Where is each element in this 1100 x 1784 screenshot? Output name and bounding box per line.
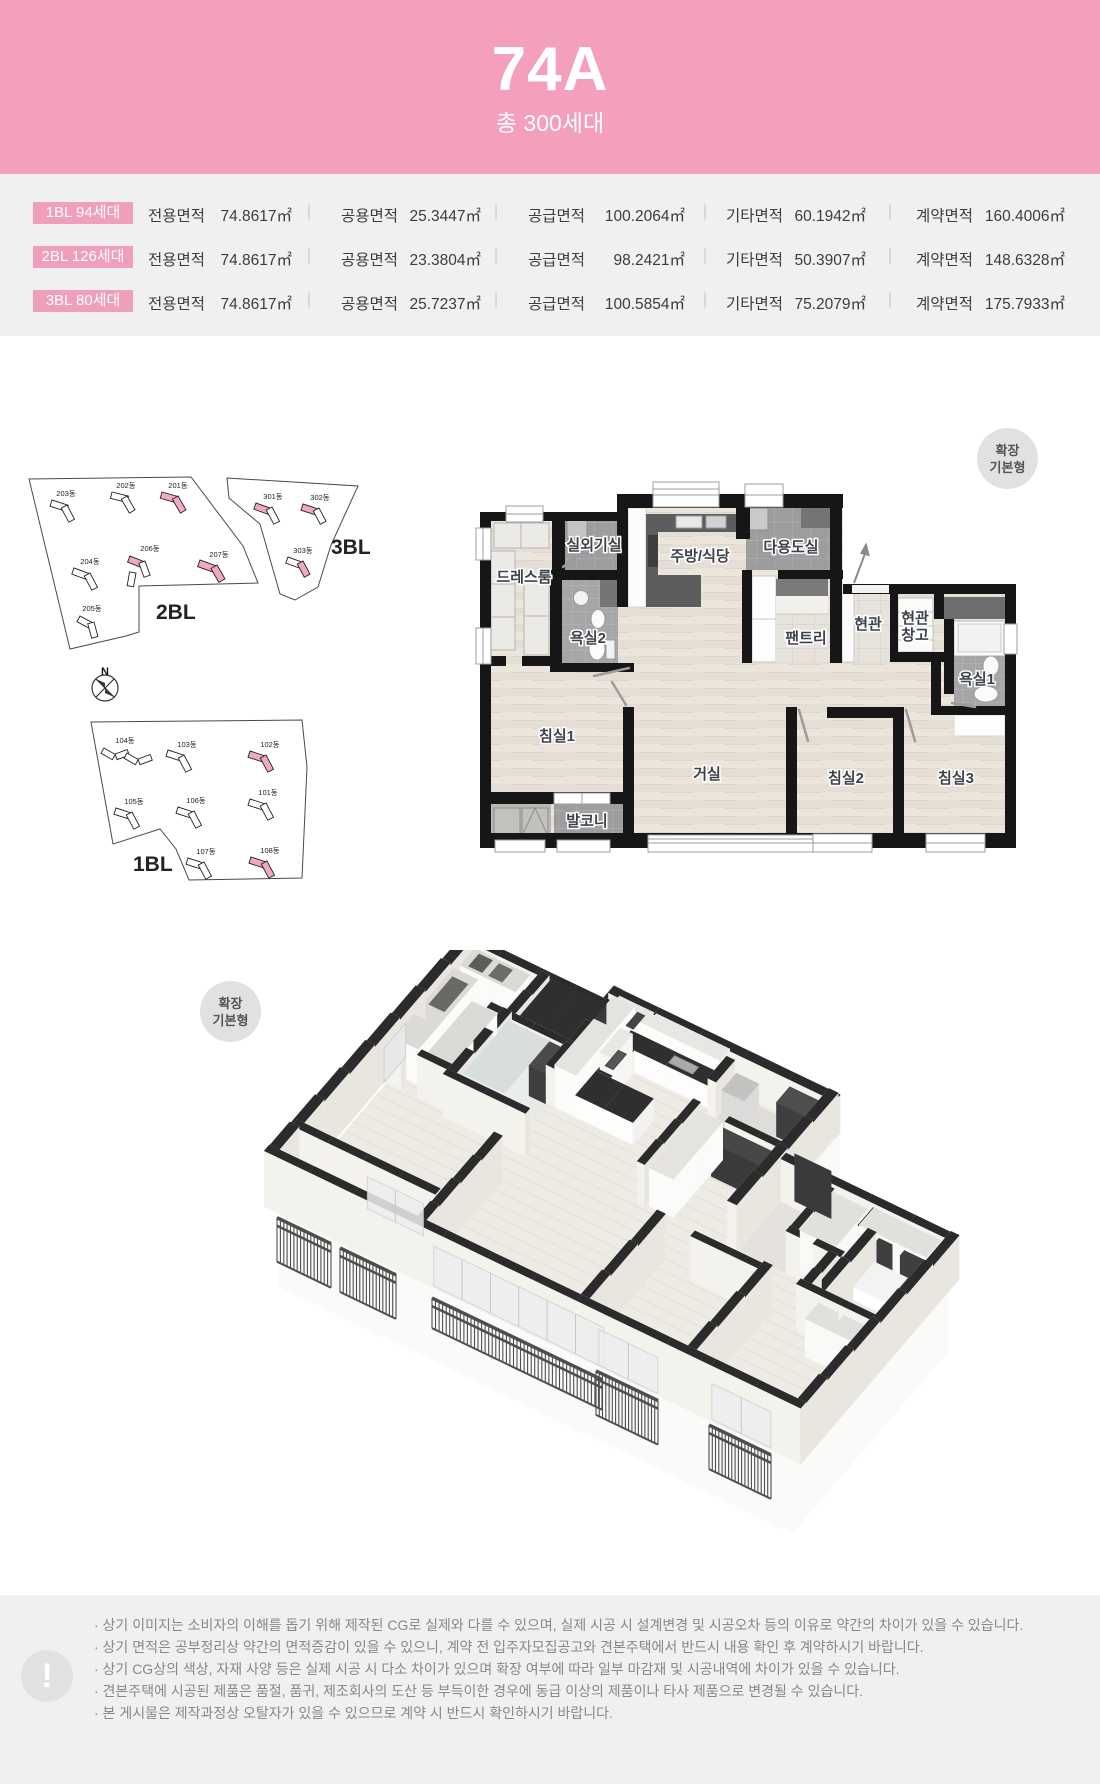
svg-text:106동: 106동 xyxy=(186,796,206,805)
svg-text:204동: 204동 xyxy=(80,557,100,566)
svg-text:드레스룸: 드레스룸 xyxy=(496,569,551,586)
svg-text:102동: 102동 xyxy=(260,740,280,749)
svg-text:침실2: 침실2 xyxy=(828,770,864,787)
svg-text:2BL: 2BL xyxy=(156,601,196,624)
svg-text:303동: 303동 xyxy=(293,546,313,555)
svg-text:현관: 현관 xyxy=(854,616,882,633)
svg-text:실외기실: 실외기실 xyxy=(566,536,621,554)
svg-text:107동: 107동 xyxy=(196,847,216,856)
svg-text:105동: 105동 xyxy=(124,797,144,806)
svg-text:N: N xyxy=(101,666,109,678)
svg-text:203동: 203동 xyxy=(56,489,76,498)
svg-text:팬트리: 팬트리 xyxy=(785,630,826,647)
svg-text:302동: 302동 xyxy=(310,493,330,502)
svg-text:108동: 108동 xyxy=(260,846,280,855)
svg-text:101동: 101동 xyxy=(258,788,278,797)
svg-text:침실3: 침실3 xyxy=(938,770,974,787)
svg-text:301동: 301동 xyxy=(263,492,283,501)
svg-text:다용도실: 다용도실 xyxy=(763,539,818,556)
svg-text:발코니: 발코니 xyxy=(566,813,607,830)
svg-text:3BL: 3BL xyxy=(331,536,371,559)
svg-text:205동: 205동 xyxy=(82,604,102,613)
svg-text:침실1: 침실1 xyxy=(539,728,575,745)
svg-text:104동: 104동 xyxy=(115,736,135,745)
svg-text:욕실2: 욕실2 xyxy=(570,630,606,647)
svg-text:욕실1: 욕실1 xyxy=(959,671,995,688)
svg-text:주방/식당: 주방/식당 xyxy=(670,547,730,565)
svg-text:현관: 현관 xyxy=(901,610,929,627)
svg-text:207동: 207동 xyxy=(209,550,229,559)
svg-text:103동: 103동 xyxy=(177,740,197,749)
svg-text:206동: 206동 xyxy=(140,544,160,553)
svg-text:거실: 거실 xyxy=(693,766,721,783)
svg-text:202동: 202동 xyxy=(116,481,136,490)
svg-text:창고: 창고 xyxy=(901,627,929,644)
svg-text:1BL: 1BL xyxy=(133,853,173,876)
svg-text:201동: 201동 xyxy=(168,481,188,490)
